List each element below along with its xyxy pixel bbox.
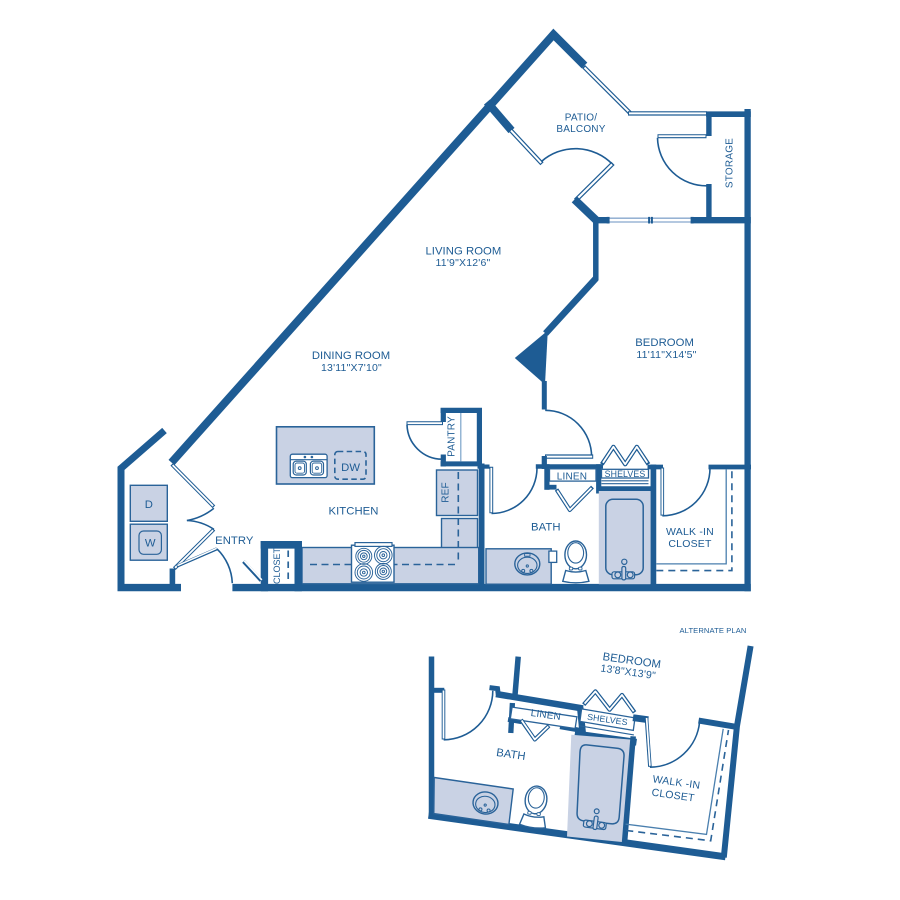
svg-text:PATIO/: PATIO/	[565, 113, 598, 124]
svg-text:13'11"X7'10": 13'11"X7'10"	[321, 362, 382, 374]
svg-text:BATH: BATH	[531, 522, 561, 534]
svg-text:KITCHEN: KITCHEN	[329, 506, 379, 518]
svg-text:WALK -IN: WALK -IN	[666, 526, 714, 538]
svg-text:DINING ROOM: DINING ROOM	[312, 350, 390, 362]
svg-text:STORAGE: STORAGE	[725, 138, 736, 188]
svg-text:BALCONY: BALCONY	[556, 124, 605, 135]
svg-text:ENTRY: ENTRY	[215, 535, 254, 547]
svg-text:SHELVES: SHELVES	[605, 469, 646, 479]
svg-text:BEDROOM: BEDROOM	[635, 337, 694, 349]
svg-text:11'9"X12'6": 11'9"X12'6"	[436, 257, 491, 269]
svg-text:DW: DW	[341, 462, 360, 474]
svg-text:REF: REF	[441, 482, 452, 503]
svg-text:ALTERNATE PLAN: ALTERNATE PLAN	[680, 626, 747, 635]
svg-text:PANTRY: PANTRY	[447, 416, 458, 457]
svg-text:11'11"X14'5": 11'11"X14'5"	[636, 349, 696, 361]
svg-text:W: W	[145, 538, 156, 550]
svg-text:D: D	[145, 499, 153, 511]
svg-text:CLOSET: CLOSET	[272, 547, 282, 584]
svg-text:LIVING ROOM: LIVING ROOM	[425, 246, 501, 258]
svg-text:CLOSET: CLOSET	[668, 538, 712, 550]
svg-text:LINEN: LINEN	[557, 471, 587, 482]
